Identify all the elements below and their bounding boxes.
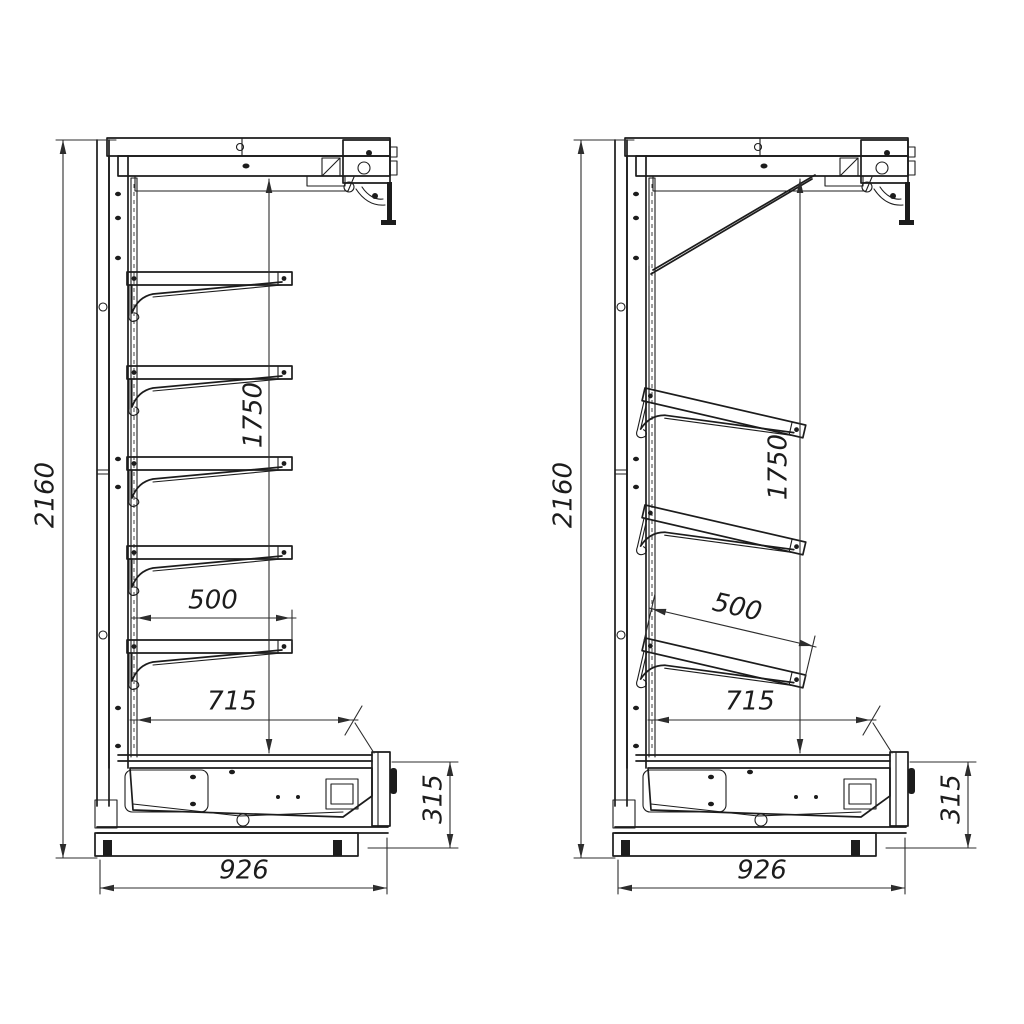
dim-label-inner-height: 1750	[239, 382, 269, 448]
shelf-with-bracket	[127, 272, 292, 321]
dim-label-base-height: 315	[937, 774, 967, 824]
dim-label-shelf-depth: 500	[188, 586, 238, 616]
dimension-inner-height	[266, 179, 273, 753]
shelf-with-bracket	[127, 640, 292, 689]
unit-frame	[56, 138, 458, 894]
dim-label-shelf-depth: 500	[710, 587, 765, 627]
dim-label-inner-height: 1750	[764, 434, 794, 500]
dim-label-overall-depth: 926	[737, 856, 787, 886]
left-unit-drawing: 2160 1750 500 715 315 926	[31, 138, 459, 894]
dimension-inner-height	[797, 179, 804, 753]
dim-label-height: 2160	[549, 462, 579, 528]
shelf-with-bracket	[127, 457, 292, 506]
right-unit-drawing: 2160 1750 500 715 315 926	[549, 138, 977, 894]
unit-frame	[574, 138, 976, 894]
shelving-unit-dimension-drawing: 2160 1750 500 715 315 926 2160 1750 500 …	[0, 0, 1024, 1024]
dim-label-deck-depth: 715	[725, 687, 775, 717]
inclined-shelf-with-bracket	[634, 505, 806, 590]
dim-label-base-height: 315	[419, 774, 449, 824]
inclined-shelf-with-bracket	[634, 638, 806, 723]
technical-drawing-page: 2160 1750 500 715 315 926 2160 1750 500 …	[0, 0, 1024, 1024]
dim-label-overall-depth: 926	[219, 856, 269, 886]
dim-label-deck-depth: 715	[207, 687, 257, 717]
dim-label-height: 2160	[31, 462, 61, 528]
